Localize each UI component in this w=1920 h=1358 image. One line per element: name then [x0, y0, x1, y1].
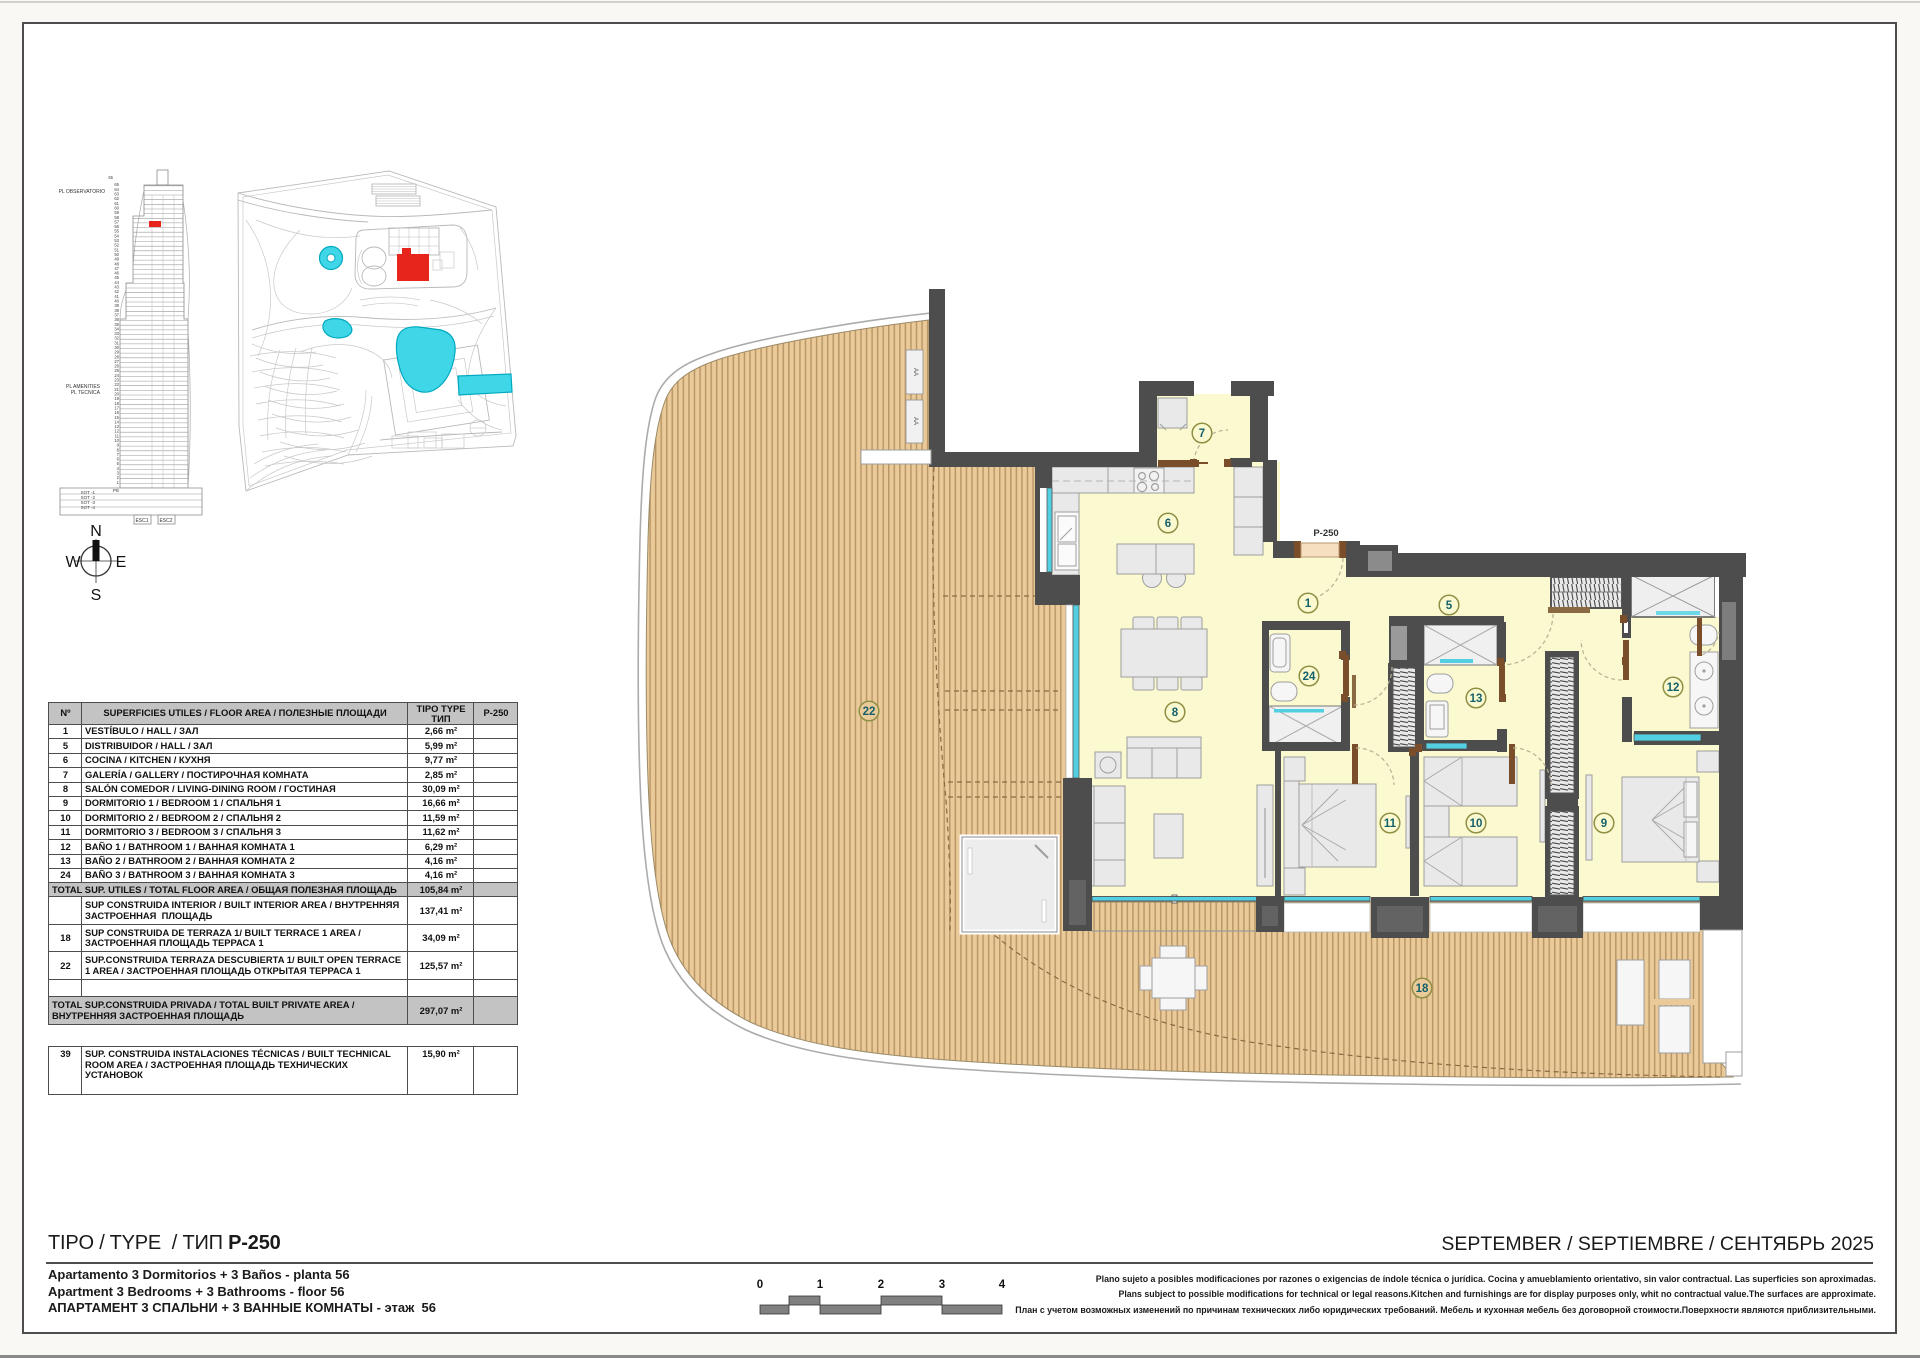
svg-text:44: 44	[114, 280, 119, 285]
svg-text:6: 6	[1165, 518, 1171, 530]
svg-text:15: 15	[114, 415, 119, 420]
svg-text:PL OBSERVATORIO: PL OBSERVATORIO	[59, 189, 106, 195]
svg-text:21: 21	[114, 387, 119, 392]
svg-text:4: 4	[999, 1279, 1006, 1291]
svg-text:PB: PB	[113, 488, 119, 493]
svg-text:2: 2	[878, 1279, 884, 1291]
svg-text:PL TECNICA: PL TECNICA	[71, 390, 101, 396]
svg-text:11: 11	[115, 433, 120, 438]
svg-text:56: 56	[114, 224, 119, 229]
svg-text:10: 10	[114, 438, 119, 443]
svg-text:18: 18	[1416, 983, 1429, 995]
svg-text:25: 25	[114, 368, 119, 373]
svg-text:1: 1	[1305, 598, 1312, 610]
svg-text:65: 65	[108, 175, 113, 180]
svg-text:7: 7	[1199, 428, 1205, 440]
svg-text:14: 14	[114, 419, 119, 424]
svg-text:63: 63	[114, 192, 119, 197]
svg-text:1: 1	[817, 1279, 824, 1291]
svg-text:8: 8	[1172, 707, 1179, 719]
svg-text:3: 3	[939, 1279, 945, 1291]
svg-text:53: 53	[114, 238, 119, 243]
svg-text:12: 12	[1667, 682, 1680, 694]
svg-text:37: 37	[114, 312, 119, 317]
svg-text:62: 62	[114, 196, 119, 201]
svg-text:11: 11	[1384, 818, 1397, 830]
svg-text:5: 5	[1446, 600, 1453, 612]
svg-text:57: 57	[114, 219, 119, 224]
svg-text:26: 26	[114, 364, 119, 369]
svg-text:51: 51	[114, 247, 119, 252]
svg-text:13: 13	[1470, 693, 1483, 705]
svg-text:23: 23	[114, 378, 119, 383]
svg-text:40: 40	[114, 299, 119, 304]
svg-text:59: 59	[114, 210, 119, 215]
svg-text:22: 22	[114, 382, 119, 387]
svg-text:52: 52	[114, 243, 119, 248]
svg-text:13: 13	[114, 424, 119, 429]
svg-text:27: 27	[114, 359, 119, 364]
svg-text:39: 39	[114, 303, 119, 308]
svg-text:19: 19	[114, 396, 119, 401]
svg-text:AA: AA	[912, 417, 918, 425]
svg-text:65: 65	[114, 182, 119, 187]
svg-text:10: 10	[1470, 818, 1483, 830]
svg-text:33: 33	[114, 331, 119, 336]
svg-text:58: 58	[114, 215, 119, 220]
svg-text:64: 64	[114, 187, 119, 192]
svg-text:16: 16	[114, 410, 119, 415]
svg-text:12: 12	[114, 429, 119, 434]
svg-text:49: 49	[114, 257, 119, 262]
svg-text:W: W	[65, 554, 81, 571]
svg-text:AA: AA	[912, 368, 918, 376]
svg-text:35: 35	[114, 322, 119, 327]
svg-text:N: N	[90, 523, 102, 540]
svg-text:22: 22	[863, 706, 876, 718]
svg-text:43: 43	[114, 285, 119, 290]
svg-text:46: 46	[114, 271, 119, 276]
svg-text:0: 0	[757, 1279, 763, 1291]
svg-text:24: 24	[114, 373, 119, 378]
svg-text:9: 9	[1601, 818, 1607, 830]
svg-text:61: 61	[114, 201, 119, 206]
svg-text:18: 18	[114, 401, 119, 406]
svg-text:17: 17	[114, 405, 119, 410]
svg-text:28: 28	[114, 354, 119, 359]
svg-text:60: 60	[114, 206, 119, 211]
svg-text:30: 30	[114, 345, 119, 350]
svg-text:E: E	[116, 554, 127, 571]
svg-text:48: 48	[114, 261, 119, 266]
svg-text:ESC1: ESC1	[135, 518, 148, 524]
svg-text:54: 54	[114, 233, 119, 238]
svg-text:ESC2: ESC2	[159, 518, 172, 524]
svg-text:36: 36	[114, 317, 119, 322]
svg-text:20: 20	[114, 392, 119, 397]
svg-text:45: 45	[114, 275, 119, 280]
svg-text:50: 50	[114, 252, 119, 257]
svg-text:SOT -4: SOT -4	[81, 505, 96, 510]
svg-text:47: 47	[114, 266, 119, 271]
svg-text:S: S	[91, 587, 102, 604]
svg-text:55: 55	[114, 229, 119, 234]
svg-text:38: 38	[114, 308, 119, 313]
svg-text:32: 32	[114, 336, 119, 341]
svg-text:29: 29	[114, 350, 119, 355]
svg-text:31: 31	[114, 340, 119, 345]
svg-text:42: 42	[114, 289, 119, 294]
svg-text:34: 34	[114, 326, 119, 331]
svg-text:41: 41	[114, 294, 119, 299]
svg-text:P-250: P-250	[1313, 528, 1338, 539]
svg-text:24: 24	[1303, 671, 1316, 683]
